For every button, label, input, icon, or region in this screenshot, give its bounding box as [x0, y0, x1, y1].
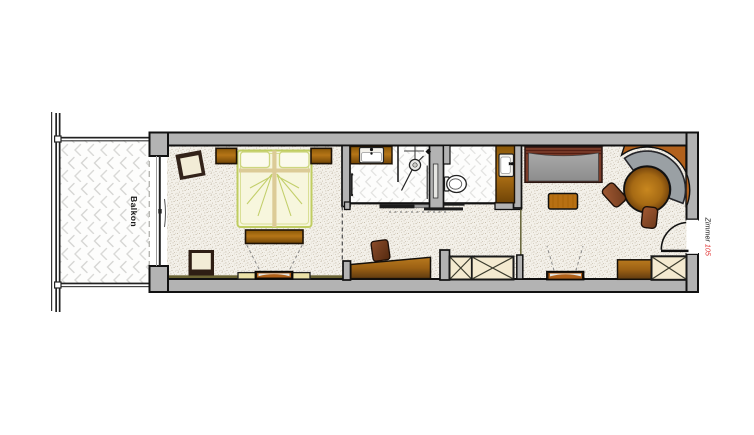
svg-text:Zimmer 105: Zimmer 105 [704, 217, 713, 257]
svg-text:Balkon: Balkon [129, 196, 139, 227]
